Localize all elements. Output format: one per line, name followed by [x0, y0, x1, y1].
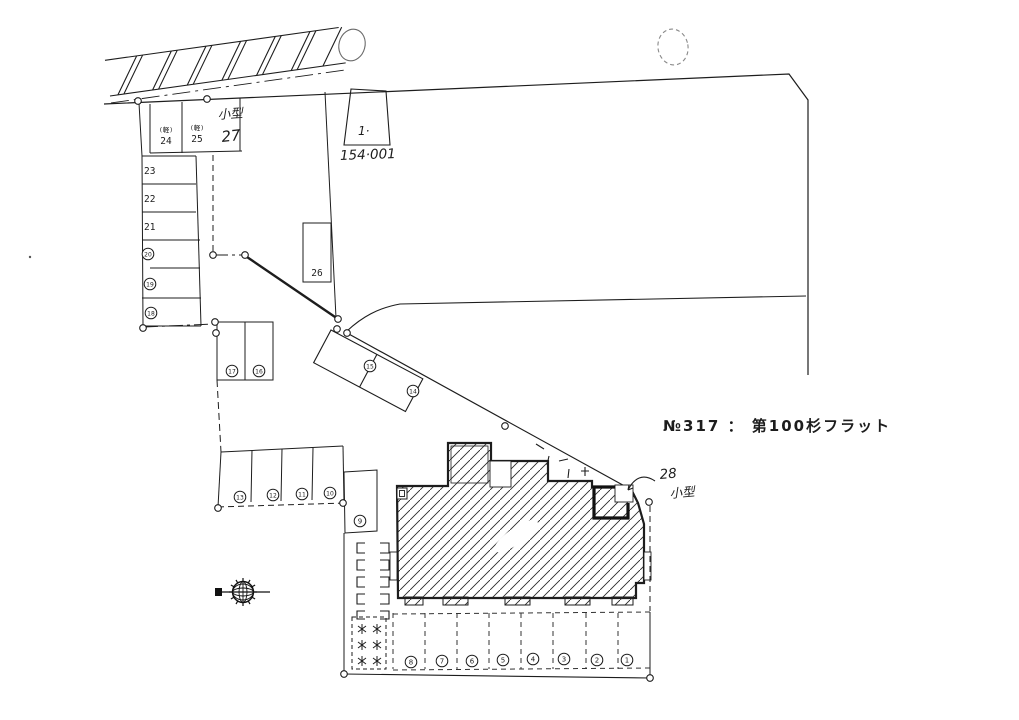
parking-space-14: 14: [407, 385, 419, 397]
parking-space-6: 6: [466, 655, 478, 667]
stall-28-label: 28: [659, 466, 678, 483]
svg-text:5: 5: [501, 657, 505, 665]
parking-space-13: 13: [234, 491, 246, 503]
svg-text:1: 1: [625, 657, 629, 665]
svg-text:9: 9: [358, 518, 362, 526]
parking-space-3: 3: [558, 653, 570, 665]
svg-text:7: 7: [440, 658, 444, 666]
stall-21-label: 21: [144, 222, 156, 233]
svg-text:8: 8: [409, 659, 413, 667]
svg-text:11: 11: [298, 491, 306, 498]
svg-text:6: 6: [470, 658, 475, 666]
stall-27-note: 小型: [217, 105, 244, 122]
parking-space-8: 8: [405, 656, 417, 668]
svg-text:18: 18: [147, 310, 155, 317]
lot-number: 1·: [358, 124, 369, 138]
svg-text:10: 10: [326, 490, 334, 497]
stall-25-label: 25: [191, 134, 202, 145]
parking-space-15: 15: [364, 360, 376, 372]
parking-space-1: 1: [621, 654, 633, 666]
parking-space-9: 9: [354, 515, 366, 527]
stall-24-note: (軽): [159, 125, 173, 134]
svg-text:17: 17: [228, 368, 236, 375]
stall-27-label: 27: [221, 126, 242, 146]
svg-text:13: 13: [236, 494, 244, 501]
lot-area: 154·001: [340, 146, 396, 164]
site-plan-drawing: 1 2 3 4 5 6 7 8 9 10 11 12 13 14 15 16 1…: [0, 0, 1019, 720]
parking-space-2: 2: [591, 654, 603, 666]
parking-space-11: 11: [296, 488, 308, 500]
stall-26-label: 26: [311, 268, 323, 279]
svg-text:12: 12: [269, 492, 277, 499]
stall-25-note: (軽): [190, 123, 204, 132]
parking-space-19: 19: [144, 278, 156, 290]
svg-text:20: 20: [144, 251, 152, 258]
stall-28-note: 小型: [669, 484, 697, 501]
svg-text:15: 15: [366, 363, 374, 370]
roof-notch: [490, 461, 511, 487]
svg-text:16: 16: [255, 368, 263, 375]
stray-mark: [29, 256, 31, 258]
parking-space-10: 10: [324, 487, 336, 499]
stall-23-label: 23: [144, 166, 155, 177]
plan-title: №317 ： 第100杉フラット: [663, 417, 891, 435]
balcony-left: [390, 552, 397, 580]
parking-space-12: 12: [267, 489, 279, 501]
parking-space-20: 20: [142, 248, 154, 260]
svg-text:19: 19: [146, 281, 154, 288]
parking-space-4: 4: [527, 653, 539, 665]
parking-space-17: 17: [226, 365, 238, 377]
parking-space-7: 7: [436, 655, 448, 667]
svg-text:3: 3: [562, 656, 566, 664]
svg-text:4: 4: [531, 656, 536, 664]
site-plan-sheet: 1 2 3 4 5 6 7 8 9 10 11 12 13 14 15 16 1…: [0, 0, 1019, 720]
stall-24-label: 24: [160, 136, 172, 147]
svg-text:14: 14: [409, 388, 417, 395]
parking-space-16: 16: [253, 365, 265, 377]
parking-space-5: 5: [497, 654, 509, 666]
stall-22-label: 22: [144, 194, 155, 205]
entry-column-marker: [397, 488, 407, 499]
parking-space-18: 18: [145, 307, 157, 319]
paper-background: [0, 0, 1019, 720]
svg-text:2: 2: [595, 657, 599, 665]
stall-28-notch: [615, 485, 633, 502]
